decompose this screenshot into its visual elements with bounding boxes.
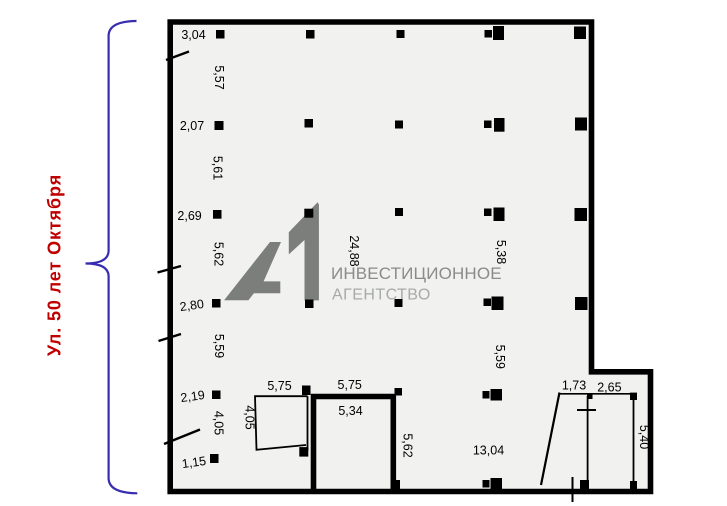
svg-text:5,38: 5,38: [494, 240, 508, 264]
svg-text:2,65: 2,65: [597, 381, 621, 395]
svg-text:3,04: 3,04: [181, 28, 205, 42]
svg-text:5,34: 5,34: [338, 404, 362, 418]
svg-text:5,61: 5,61: [211, 156, 225, 180]
svg-text:5,75: 5,75: [267, 379, 291, 393]
svg-text:5,40: 5,40: [637, 425, 651, 449]
svg-text:24,88: 24,88: [347, 235, 361, 266]
svg-text:АГЕНТСТВО: АГЕНТСТВО: [332, 286, 431, 303]
svg-text:5,62: 5,62: [400, 433, 414, 457]
svg-text:4,05: 4,05: [242, 405, 256, 429]
svg-text:2,69: 2,69: [177, 209, 201, 223]
svg-text:Ул. 50 лет Октября: Ул. 50 лет Октября: [45, 174, 65, 356]
svg-text:2,07: 2,07: [180, 119, 204, 133]
svg-text:1,73: 1,73: [562, 379, 586, 393]
svg-text:4,05: 4,05: [212, 411, 226, 435]
svg-text:5,62: 5,62: [212, 242, 226, 266]
svg-text:13,04: 13,04: [473, 444, 504, 458]
svg-text:5,75: 5,75: [338, 378, 362, 392]
svg-text:5,57: 5,57: [212, 65, 226, 89]
svg-text:ИНВЕСТИЦИОННОЕ: ИНВЕСТИЦИОННОЕ: [331, 264, 502, 283]
svg-text:5,59: 5,59: [493, 345, 507, 369]
svg-text:5,59: 5,59: [212, 334, 226, 358]
